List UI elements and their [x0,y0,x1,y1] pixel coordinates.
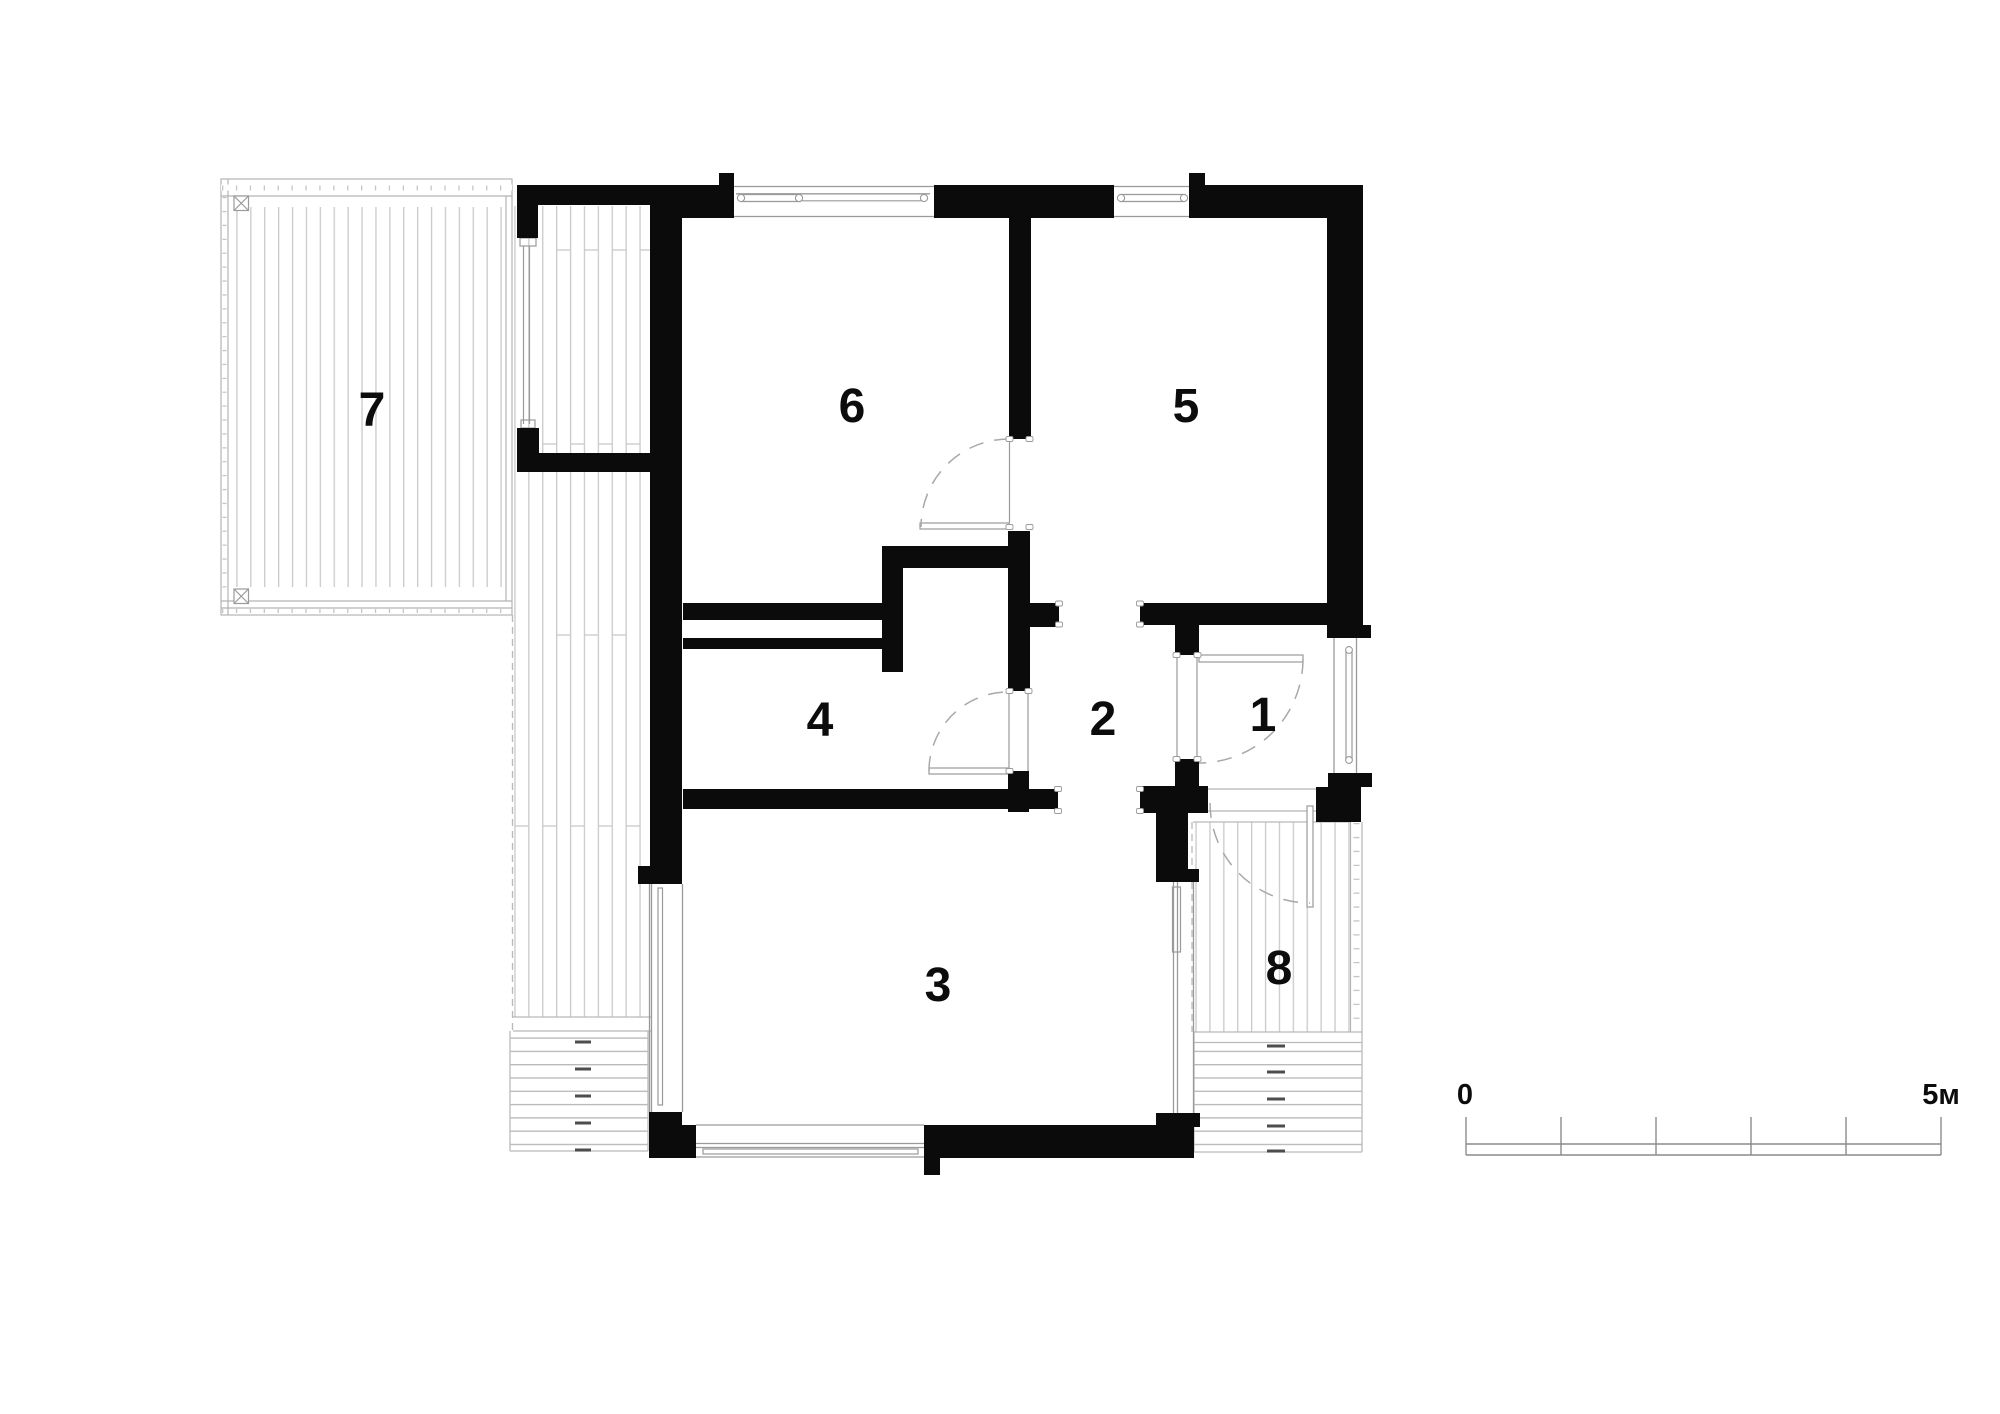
svg-text:8: 8 [1266,942,1293,995]
svg-text:1: 1 [1250,689,1277,742]
svg-text:4: 4 [807,694,834,747]
svg-text:2: 2 [1090,693,1117,746]
svg-text:0: 0 [1457,1079,1473,1111]
svg-text:6: 6 [839,380,866,433]
svg-text:5м: 5м [1922,1079,1960,1111]
svg-text:3: 3 [925,959,952,1012]
svg-text:7: 7 [359,384,386,437]
svg-text:5: 5 [1173,380,1200,433]
